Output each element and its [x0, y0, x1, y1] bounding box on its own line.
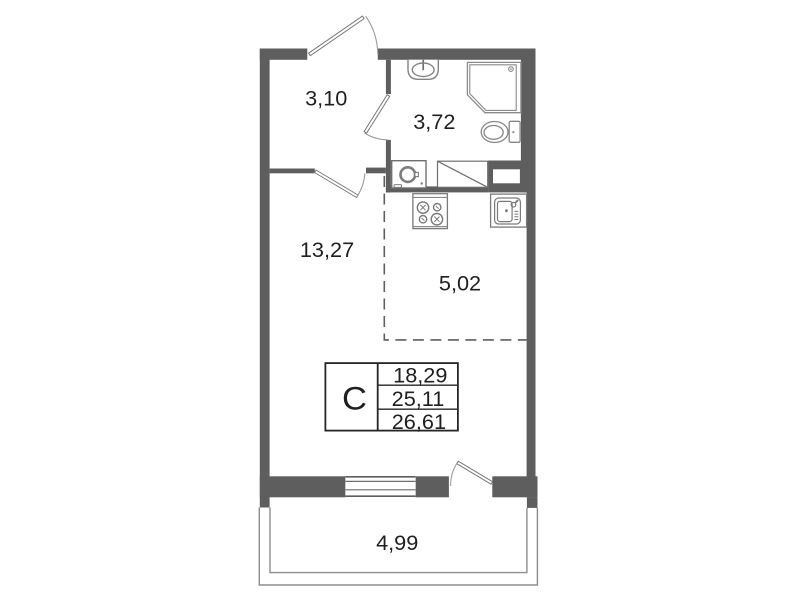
svg-text:18,29: 18,29	[393, 363, 447, 388]
svg-text:3,72: 3,72	[413, 109, 455, 134]
svg-text:4,99: 4,99	[376, 530, 418, 555]
svg-text:3,10: 3,10	[305, 85, 347, 110]
svg-text:26,61: 26,61	[392, 409, 446, 434]
svg-text:C: C	[342, 382, 367, 418]
svg-text:5,02: 5,02	[439, 270, 481, 295]
svg-text:25,11: 25,11	[392, 386, 445, 411]
svg-text:13,27: 13,27	[300, 237, 354, 262]
